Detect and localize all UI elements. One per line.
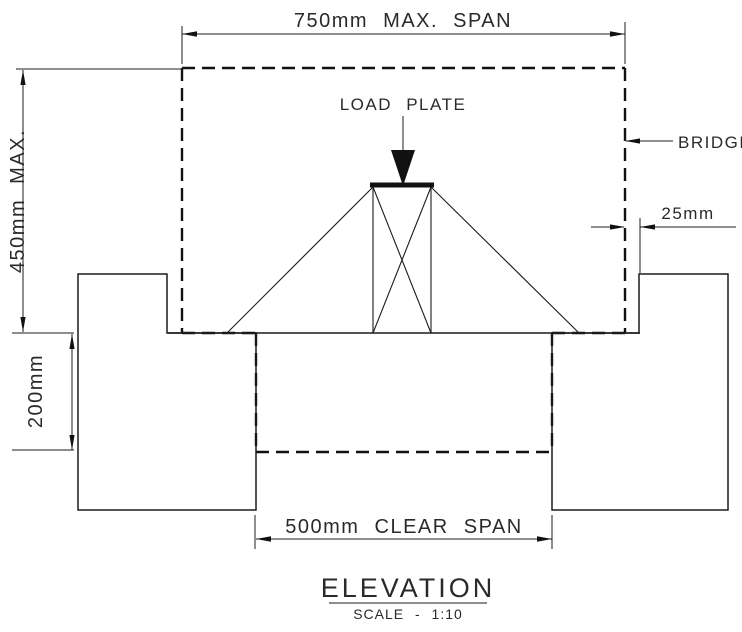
dimension-label-bearing: 25mm bbox=[661, 204, 714, 223]
left-diagonal-member bbox=[227, 187, 373, 333]
label-bridge: BRIDGE bbox=[678, 133, 742, 152]
elevation-drawing: 750mm MAX. SPAN LOAD PLATE BRIDGE 25mm 4… bbox=[0, 0, 742, 632]
truss-structure bbox=[168, 185, 640, 333]
dimension-label-deck-depth: 200mm bbox=[25, 354, 47, 428]
leader-arrow-icon bbox=[625, 138, 640, 143]
dimension-label-clear-span: 500mm CLEAR SPAN bbox=[285, 516, 522, 538]
dimension-label-height-max: 450mm MAX. bbox=[7, 129, 29, 273]
bridge-leader bbox=[625, 138, 673, 143]
load-plate-leader bbox=[391, 116, 415, 186]
right-diagonal-member bbox=[431, 187, 579, 333]
drawing-scale-note: SCALE - 1:10 bbox=[353, 606, 463, 622]
right-support-block bbox=[552, 274, 728, 510]
dimension-450-height bbox=[12, 69, 181, 333]
left-support-block bbox=[78, 274, 256, 510]
dimension-label-max-span: 750mm MAX. SPAN bbox=[294, 10, 512, 32]
drawing-title: ELEVATION bbox=[321, 573, 496, 603]
drawing-canvas: 750mm MAX. SPAN LOAD PLATE BRIDGE 25mm 4… bbox=[0, 0, 742, 632]
load-arrow-icon bbox=[391, 150, 415, 186]
label-load-plate: LOAD PLATE bbox=[340, 95, 467, 114]
dimension-25-bearing bbox=[591, 218, 736, 273]
